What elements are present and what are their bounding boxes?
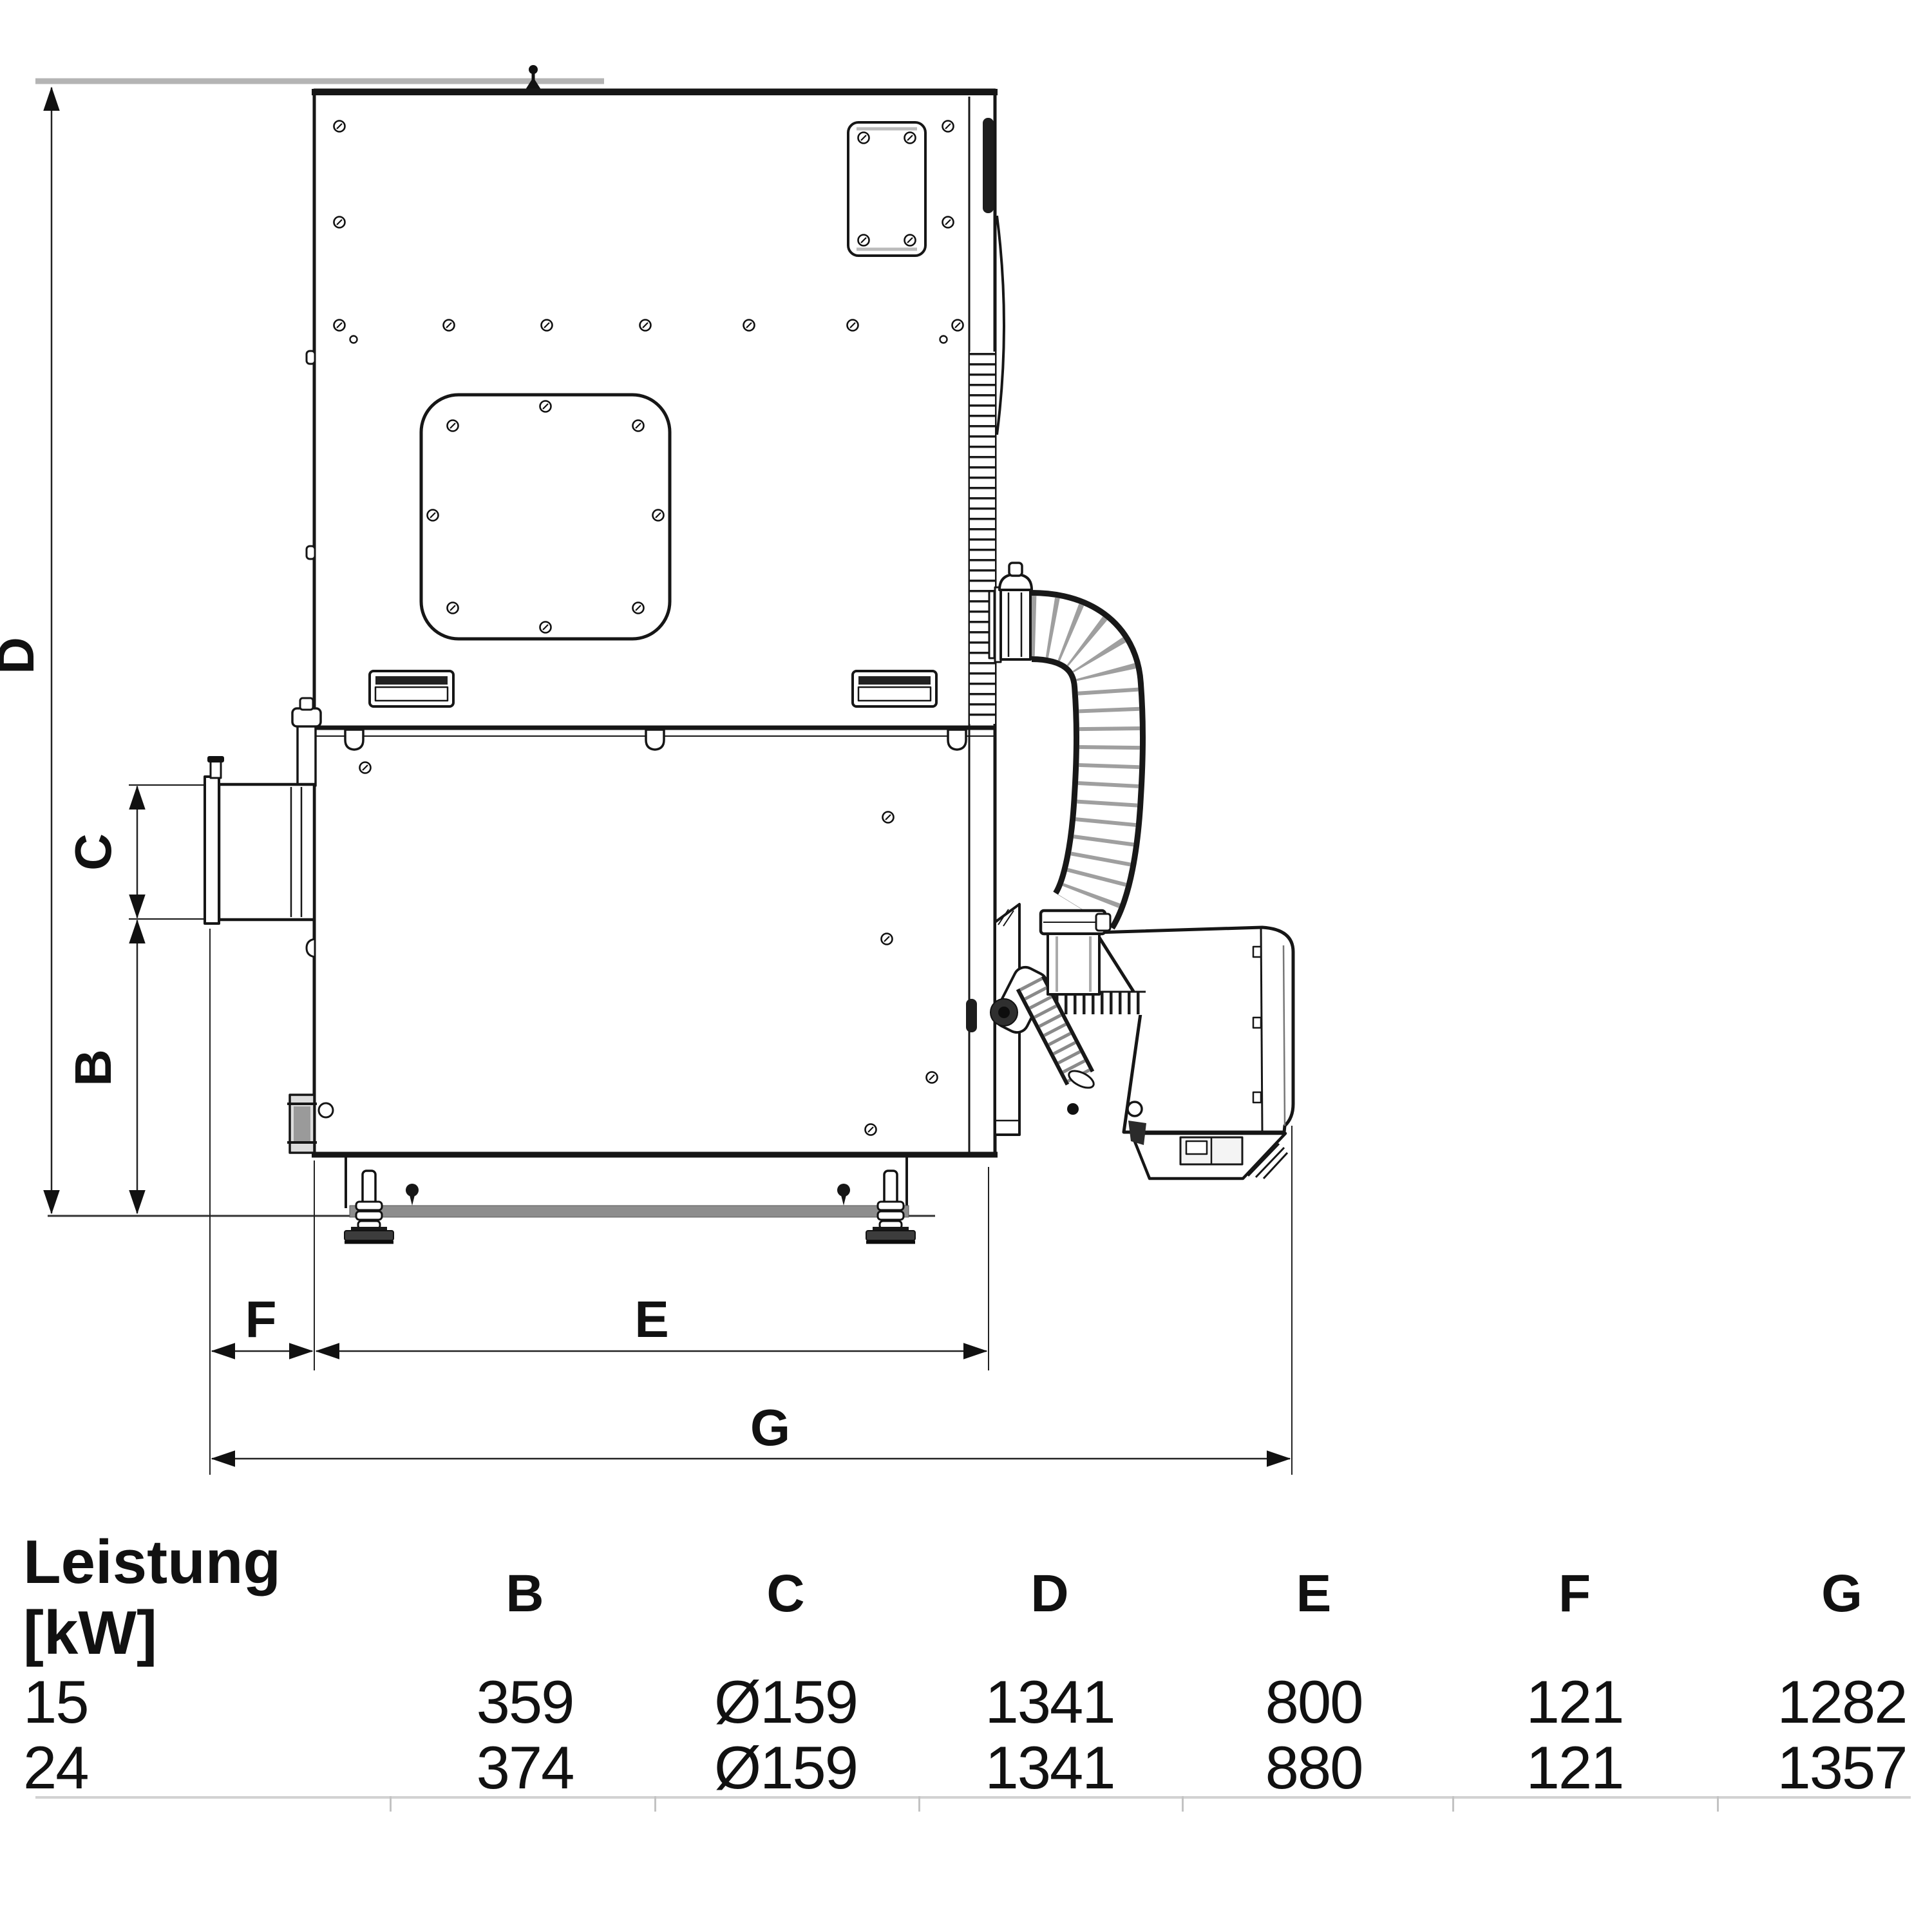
dimension-G: G (212, 1399, 1290, 1459)
base-bar (350, 1206, 909, 1217)
row24-B: 374 (422, 1732, 628, 1803)
hinge-tab (646, 730, 664, 750)
row15-B: 359 (422, 1667, 628, 1738)
table-col-tick (1717, 1796, 1719, 1812)
burner-unit (1096, 927, 1293, 1132)
dimension-E: E (316, 1291, 987, 1351)
row24-C: Ø159 (683, 1732, 889, 1803)
latch-ring (1128, 1102, 1142, 1116)
hinge-arc (997, 216, 1004, 435)
dimension-C: C (64, 786, 137, 918)
table-col-G: G (1739, 1562, 1932, 1626)
row24-G: 1357 (1739, 1732, 1932, 1803)
row24-kw: 24 (23, 1732, 294, 1803)
dimension-G-label: G (750, 1399, 790, 1456)
table-col-E: E (1211, 1562, 1417, 1626)
pipe-stub-capped (292, 698, 321, 786)
row24-F: 121 (1472, 1732, 1678, 1803)
row15-F: 121 (1472, 1667, 1678, 1738)
row15-E: 800 (1211, 1667, 1417, 1738)
table-col-C: C (683, 1562, 889, 1626)
anchor-bolt-left (406, 1184, 419, 1206)
table-header-leistung: Leistung (23, 1528, 294, 1597)
table-col-B: B (422, 1562, 628, 1626)
handle-left (370, 671, 453, 706)
dimension-B-label: B (64, 1049, 122, 1086)
ribbed-band (970, 352, 995, 724)
dimension-D-label: D (0, 637, 44, 674)
dimension-C-label: C (64, 833, 122, 871)
access-panel (848, 122, 925, 256)
row24-E: 880 (1211, 1732, 1417, 1803)
burner-assembly (989, 563, 1293, 1179)
dimension-D: D (0, 88, 52, 1213)
dimension-E-label: E (634, 1291, 668, 1348)
table-col-D: D (947, 1562, 1153, 1626)
row15-kw: 15 (23, 1667, 294, 1738)
table-col-tick (1182, 1796, 1184, 1812)
hinge-tab (345, 730, 363, 750)
row15-C: Ø159 (683, 1667, 889, 1738)
boiler-body (307, 90, 1004, 1156)
hinge-upper (983, 118, 994, 213)
inspection-window (421, 395, 670, 639)
table-col-tick (390, 1796, 392, 1812)
table-col-tick (654, 1796, 656, 1812)
table-header-kw: [kW] (23, 1598, 294, 1668)
latch-hook (1128, 1121, 1146, 1145)
table-col-tick (918, 1796, 920, 1812)
hinge-lower (966, 999, 977, 1032)
dimension-B: B (64, 920, 137, 1213)
table-col-tick (1452, 1796, 1454, 1812)
base-assembly (345, 1156, 915, 1242)
hinge-tab (948, 730, 966, 750)
hose-clamp (1041, 911, 1110, 934)
dimension-F-label: F (245, 1291, 277, 1348)
hose-outlet-tube (1048, 934, 1099, 994)
row24-D: 1341 (947, 1732, 1153, 1803)
table-col-F: F (1472, 1562, 1678, 1626)
plate-screw (1067, 1103, 1079, 1115)
row15-D: 1341 (947, 1667, 1153, 1738)
anchor-bolt-right (837, 1184, 850, 1206)
boiler-dimension-sheet: D C B F E G (0, 0, 1932, 1932)
row15-G: 1282 (1739, 1667, 1932, 1738)
dimension-F: F (212, 1291, 312, 1351)
handle-right (853, 671, 936, 706)
table-bottom-rule (35, 1796, 1911, 1799)
